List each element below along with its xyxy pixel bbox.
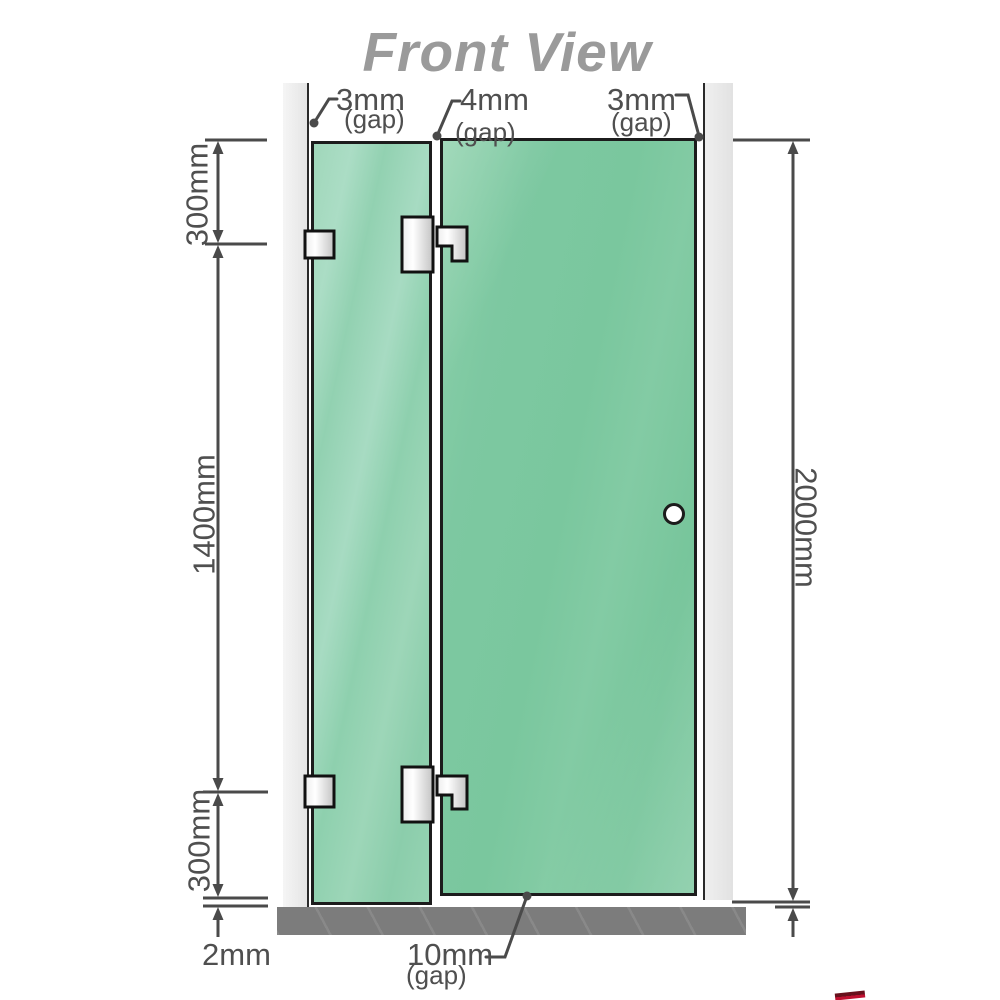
dimension-label-left-top: 300mm (182, 135, 213, 255)
door-knob (663, 503, 685, 525)
right-wall (703, 83, 733, 900)
glass-door-panel (440, 138, 697, 896)
front-view-diagram: Front View (0, 0, 1000, 1000)
gap-label-bottom-suffix: (gap) (406, 962, 467, 988)
gap-label-top-left-suffix: (gap) (344, 106, 405, 132)
dimension-label-left-bottom: 300mm (184, 781, 215, 901)
dimension-label-floor-gap: 2mm (202, 939, 271, 970)
left-wall (283, 83, 309, 907)
logo-fragment (835, 990, 866, 1000)
floor-base (277, 907, 746, 935)
diagram-title: Front View (257, 20, 757, 84)
dimension-label-left-middle: 1400mm (189, 445, 220, 585)
dimension-label-right-height: 2000mm (791, 458, 822, 598)
gap-label-top-middle: 4mm (460, 84, 529, 115)
gap-label-top-middle-suffix: (gap) (455, 119, 516, 145)
fixed-glass-panel (311, 141, 432, 905)
gap-label-top-right-suffix: (gap) (611, 109, 672, 135)
